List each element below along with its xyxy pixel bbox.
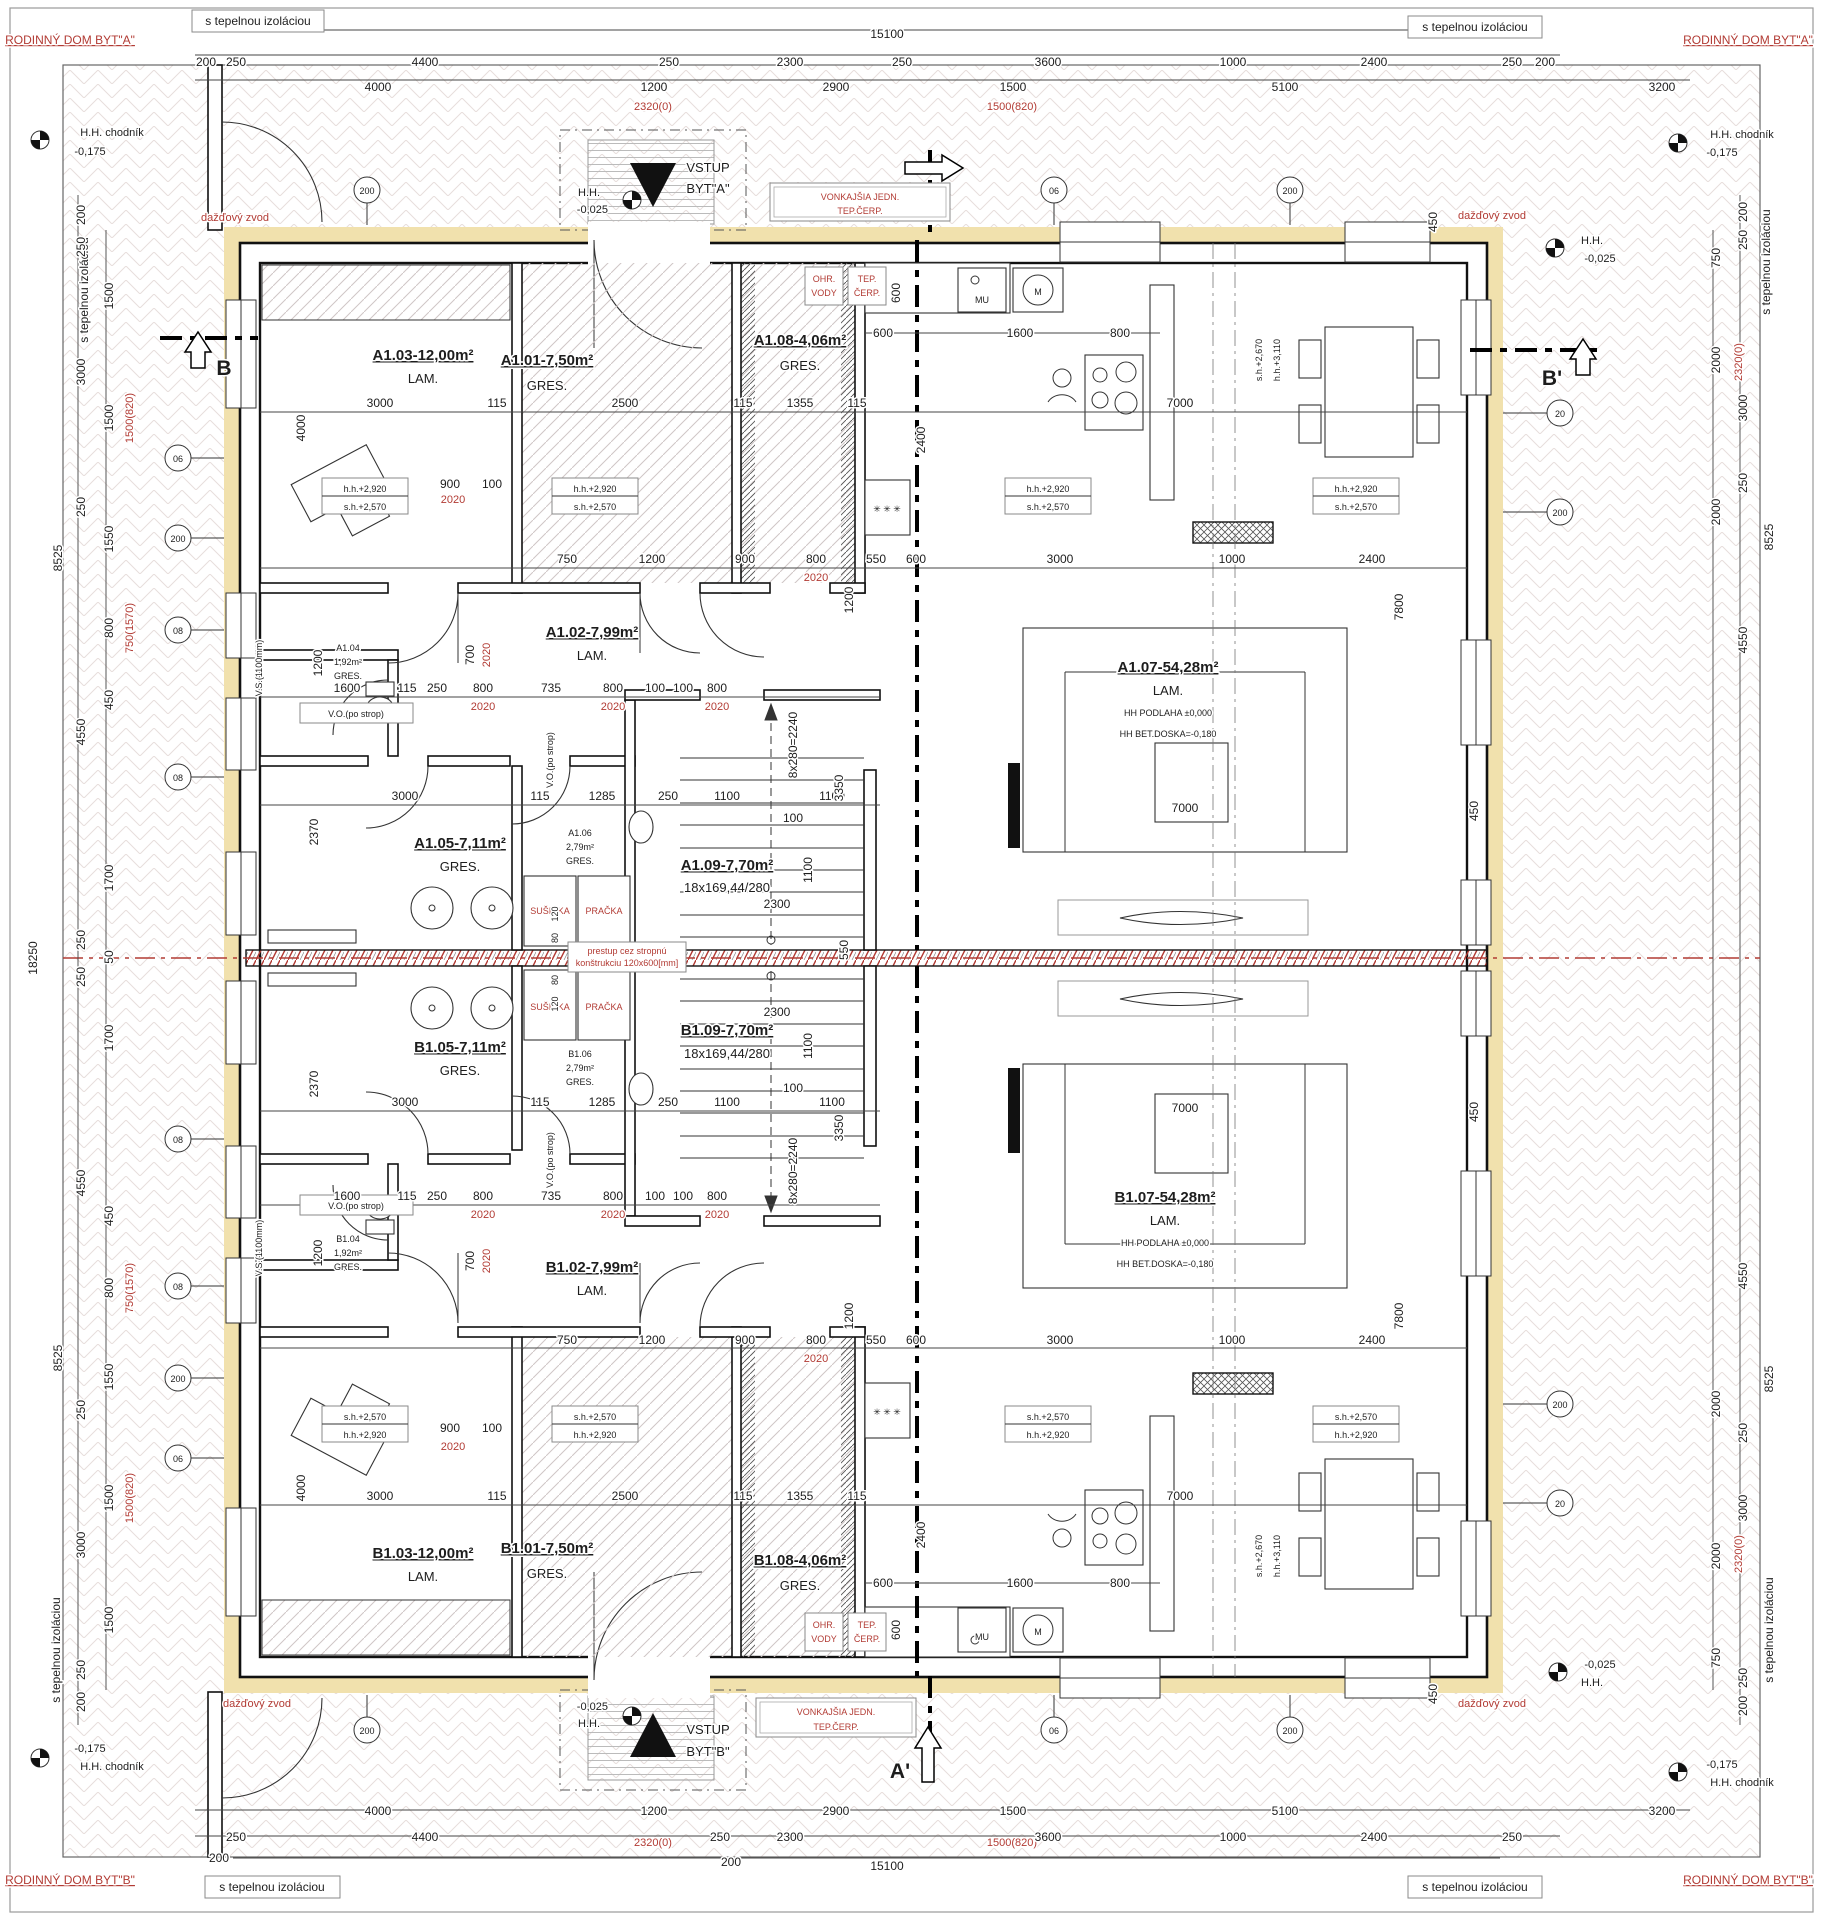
dim-label: 250 bbox=[427, 681, 447, 695]
dim-label: 1600 bbox=[334, 681, 361, 695]
window-mark: 08 bbox=[173, 773, 183, 783]
dim-label: 100 bbox=[783, 1081, 803, 1095]
sidewalk-label: H.H. chodník bbox=[1710, 129, 1774, 141]
dim-label: 550 bbox=[866, 1333, 886, 1347]
dim-label: 50 bbox=[102, 950, 116, 964]
stair-run-note: 18x169,44/280 bbox=[684, 1046, 770, 1061]
dim-label: 600 bbox=[873, 326, 893, 340]
room-a104: A1.04 bbox=[336, 643, 360, 653]
dim-label: 120 bbox=[550, 996, 560, 1011]
dim-label: 1500 bbox=[1000, 1804, 1027, 1818]
window-mark: 08 bbox=[173, 1282, 183, 1292]
dim-label: 250 bbox=[74, 1660, 88, 1680]
dim-label: 250 bbox=[710, 1830, 730, 1844]
dim-label: 200 bbox=[196, 55, 216, 69]
sill-height: s.h.+2,670 bbox=[1254, 1535, 1264, 1577]
dim-label: 1700 bbox=[102, 1024, 116, 1051]
dim-label: 100 bbox=[645, 1189, 665, 1203]
dim-label: 3000 bbox=[1047, 552, 1074, 566]
red-dim-label: 1500(820) bbox=[987, 1837, 1037, 1849]
downspout-label: dažďový zvod bbox=[1458, 210, 1526, 222]
sidewalk-label: H.H. chodník bbox=[1710, 1777, 1774, 1789]
dim-label: 2000 bbox=[1709, 498, 1723, 525]
dim-label: 1600 bbox=[334, 1189, 361, 1203]
floor-type: LAM. bbox=[1150, 1213, 1180, 1228]
title-top-right: RODINNÝ DOM BYT"A" bbox=[1683, 32, 1813, 47]
dim-label: 15100 bbox=[870, 1859, 904, 1873]
room-b107: B1.07-54,28m² bbox=[1115, 1189, 1216, 1206]
dim-label: 1500 bbox=[102, 1484, 116, 1511]
window-mark: 06 bbox=[1049, 1726, 1059, 1736]
floor-type: LAM. bbox=[408, 1569, 438, 1584]
slab-level-note: HH BET.DOSKA=-0,180 bbox=[1117, 1259, 1214, 1269]
floor-plan-sheet: A A' B B' RODINNÝ DOM BYT"A" RODINNÝ DOM… bbox=[0, 0, 1823, 1920]
dim-label: 800 bbox=[1110, 326, 1130, 340]
sidewalk-level: -0,175 bbox=[1706, 1759, 1737, 1771]
window-mark: 200 bbox=[1282, 186, 1297, 196]
dim-label: 2370 bbox=[307, 818, 321, 845]
dim-label: 250 bbox=[226, 55, 246, 69]
dim-label: 5100 bbox=[1272, 1804, 1299, 1818]
room-area: 1,92m² bbox=[334, 657, 362, 667]
dim-label: 2400 bbox=[914, 426, 928, 453]
room-b103: B1.03-12,00m² bbox=[373, 1545, 474, 1562]
dim-label: 1200 bbox=[641, 80, 668, 94]
dim-label: 200 bbox=[74, 1692, 88, 1712]
dim-label: 4000 bbox=[365, 1804, 392, 1818]
sill-height: s.h.+2,670 bbox=[1254, 339, 1264, 381]
dim-label: 1100 bbox=[801, 857, 815, 883]
prestup-line2: konštrukciu 120x600[mm] bbox=[576, 958, 679, 968]
dim-label: 800 bbox=[707, 681, 727, 695]
red-dim-label: 2020 bbox=[481, 1249, 493, 1273]
dim-label: 900 bbox=[735, 552, 755, 566]
dim-label: 3200 bbox=[1649, 1804, 1676, 1818]
room-a107: A1.07-54,28m² bbox=[1118, 659, 1219, 676]
red-dim-label: 750(1570) bbox=[124, 1263, 136, 1313]
dim-label: 7000 bbox=[1172, 801, 1199, 815]
dim-label: 1550 bbox=[102, 525, 116, 552]
vs-note: V.S.(1100mm) bbox=[254, 1220, 264, 1277]
dim-label: 800 bbox=[102, 1278, 116, 1298]
insulation-label: s tepelnou izoláciou bbox=[49, 1597, 63, 1702]
dim-label: 750 bbox=[557, 1333, 577, 1347]
room-a102: A1.02-7,99m² bbox=[546, 624, 639, 641]
red-dim-label: 2020 bbox=[804, 1353, 828, 1365]
floor-type: GRES. bbox=[566, 856, 594, 866]
sill-height: s.h.+2,570 bbox=[574, 1412, 616, 1422]
dim-label: 100 bbox=[482, 1421, 502, 1435]
dim-label: 250 bbox=[1736, 1423, 1750, 1443]
room-area: 2,79m² bbox=[566, 842, 594, 852]
section-label-b2: B' bbox=[1542, 367, 1562, 390]
floor-type: GRES. bbox=[334, 671, 362, 681]
dim-label: 250 bbox=[427, 1189, 447, 1203]
window-mark: 08 bbox=[173, 626, 183, 636]
tep-cerp: ČERP. bbox=[854, 1634, 880, 1644]
floor-type: GRES. bbox=[566, 1077, 594, 1087]
floor-type: GRES. bbox=[440, 1063, 480, 1078]
dim-label: 100 bbox=[783, 811, 803, 825]
section-label-b: B bbox=[216, 357, 231, 380]
dim-label: 250 bbox=[892, 55, 912, 69]
insulation-label: s tepelnou izoláciou bbox=[1759, 209, 1773, 314]
room-b104: B1.04 bbox=[336, 1234, 360, 1244]
downspout-label: dažďový zvod bbox=[223, 1698, 291, 1710]
dim-label: 600 bbox=[906, 1333, 926, 1347]
dim-label: 600 bbox=[906, 552, 926, 566]
floor-level-note: HH PODLAHA ±0,000 bbox=[1121, 1238, 1209, 1248]
dim-label: 1200 bbox=[311, 649, 325, 676]
sill-height: s.h.+2,570 bbox=[1027, 502, 1069, 512]
dim-label: 100 bbox=[645, 681, 665, 695]
red-dim-label: 2020 bbox=[804, 572, 828, 584]
outdoor-unit-line2: TEP.ČERP. bbox=[837, 206, 882, 216]
dim-label: 7000 bbox=[1172, 1101, 1199, 1115]
window-mark: 200 bbox=[359, 186, 374, 196]
window-mark: 20 bbox=[1555, 409, 1565, 419]
dim-label: 1200 bbox=[639, 1333, 666, 1347]
dim-label: 1285 bbox=[589, 1095, 616, 1109]
hh-label: H.H. bbox=[578, 1718, 600, 1730]
dim-label: 1500 bbox=[102, 282, 116, 309]
lintel-height: h.h.+2,920 bbox=[574, 484, 617, 494]
dim-label: 250 bbox=[658, 1095, 678, 1109]
dim-label: 450 bbox=[102, 1206, 116, 1226]
dim-label: 2900 bbox=[823, 1804, 850, 1818]
entry-level: -0,025 bbox=[577, 204, 608, 216]
dim-label: 115 bbox=[487, 396, 506, 410]
dim-label: 100 bbox=[482, 477, 502, 491]
dim-label: 250 bbox=[74, 930, 88, 950]
room-b108: B1.08-4,06m² bbox=[754, 1552, 847, 1569]
red-dim-label: 2020 bbox=[481, 643, 493, 667]
dim-label: 900 bbox=[735, 1333, 755, 1347]
dim-label: 800 bbox=[473, 681, 493, 695]
slab-level-note: HH BET.DOSKA=-0,180 bbox=[1120, 729, 1217, 739]
sink-mu: MU bbox=[975, 295, 989, 305]
ohr-vody: VODY bbox=[811, 1634, 837, 1644]
window-mark: 200 bbox=[1282, 1726, 1297, 1736]
dim-label: 2000 bbox=[1709, 1390, 1723, 1417]
dim-label: 2000 bbox=[1709, 346, 1723, 373]
room-a103: A1.03-12,00m² bbox=[373, 347, 474, 364]
dim-label: 800 bbox=[806, 1333, 826, 1347]
sidewalk-label: H.H. chodník bbox=[80, 1761, 144, 1773]
vstup-label: VSTUP bbox=[686, 1722, 729, 1737]
dim-label: 115 bbox=[733, 1489, 752, 1503]
dim-label: 4400 bbox=[412, 55, 439, 69]
dim-label: 1100 bbox=[714, 789, 740, 803]
lintel-height: h.h.+2,920 bbox=[344, 1430, 387, 1440]
red-dim-label: 750(1570) bbox=[124, 603, 136, 653]
washer-m: M bbox=[1034, 287, 1042, 297]
room-b106: B1.06 bbox=[568, 1049, 592, 1059]
window-mark: 06 bbox=[173, 1454, 183, 1464]
sidewalk-level: -0,175 bbox=[74, 1743, 105, 1755]
lintel-height: h.h.+2,920 bbox=[1027, 484, 1070, 494]
dim-label: 8525 bbox=[1762, 523, 1776, 550]
room-b101: B1.01-7,50m² bbox=[501, 1540, 594, 1557]
lintel-height: h.h.+2,920 bbox=[1335, 1430, 1378, 1440]
dim-label: 1000 bbox=[1220, 55, 1247, 69]
dim-label: 250 bbox=[74, 237, 88, 257]
vo-note: V.O.(po strop) bbox=[545, 1132, 555, 1188]
dim-label: 115 bbox=[530, 789, 549, 803]
outdoor-unit-line1: VONKAJŠIA JEDN. bbox=[821, 192, 900, 202]
dim-label: 1500 bbox=[102, 1606, 116, 1633]
title-bottom-left: RODINNÝ DOM BYT"B" bbox=[5, 1872, 135, 1887]
dim-label: 8525 bbox=[1762, 1365, 1776, 1392]
dim-label: 250 bbox=[658, 789, 678, 803]
pracka-label: PRAČKA bbox=[585, 906, 622, 916]
dim-label: 4550 bbox=[1736, 1262, 1750, 1289]
sill-height: s.h.+2,570 bbox=[1027, 1412, 1069, 1422]
dim-label: 800 bbox=[1110, 1576, 1130, 1590]
room-a108: A1.08-4,06m² bbox=[754, 332, 847, 349]
red-dim-label: 2320(0) bbox=[634, 101, 672, 113]
window-mark: 20 bbox=[1555, 1499, 1565, 1509]
dim-label: 115 bbox=[397, 1189, 416, 1203]
dim-label: 2300 bbox=[764, 897, 791, 911]
dim-label: 800 bbox=[603, 1189, 623, 1203]
sidewalk-label: H.H. chodník bbox=[80, 127, 144, 139]
dim-label: 1600 bbox=[1007, 1576, 1034, 1590]
entry-level: -0,025 bbox=[577, 1701, 608, 1713]
dim-label: 600 bbox=[873, 1576, 893, 1590]
dim-label: 120 bbox=[550, 906, 560, 921]
dim-label: 3000 bbox=[367, 1489, 394, 1503]
dim-label: 7800 bbox=[1392, 1302, 1406, 1329]
window-mark: 200 bbox=[359, 1726, 374, 1736]
dim-label: 115 bbox=[847, 396, 866, 410]
dim-label: 700 bbox=[463, 645, 477, 665]
dim-label: 2400 bbox=[1359, 1333, 1386, 1347]
dim-label: 250 bbox=[1736, 473, 1750, 493]
dim-label: 2300 bbox=[777, 55, 804, 69]
dim-label: 550 bbox=[837, 940, 851, 960]
sink-mu: MU bbox=[975, 1632, 989, 1642]
dim-label: 3000 bbox=[392, 1095, 419, 1109]
dim-label: 1600 bbox=[1007, 326, 1034, 340]
room-a106: A1.06 bbox=[568, 828, 592, 838]
floor-type: LAM. bbox=[1153, 683, 1183, 698]
title-top-left: RODINNÝ DOM BYT"A" bbox=[5, 32, 135, 47]
hh-label: H.H. bbox=[1581, 235, 1603, 247]
dim-label: 1355 bbox=[787, 1489, 814, 1503]
dim-label: 200 bbox=[721, 1855, 741, 1869]
dim-label: 7000 bbox=[1167, 1489, 1194, 1503]
hh-label: H.H. bbox=[578, 187, 600, 199]
dim-label: 250 bbox=[1502, 1830, 1522, 1844]
dim-label: 4400 bbox=[412, 1830, 439, 1844]
dim-label: 7800 bbox=[1392, 593, 1406, 620]
section-label-a2: A' bbox=[890, 1760, 910, 1783]
room-a109: A1.09-7,70m² bbox=[681, 857, 774, 874]
dim-label: 1550 bbox=[102, 1363, 116, 1390]
dim-label: 2300 bbox=[764, 1005, 791, 1019]
dim-label: 550 bbox=[866, 552, 886, 566]
room-a101: A1.01-7,50m² bbox=[501, 352, 594, 369]
dim-label: 450 bbox=[1426, 212, 1440, 232]
vo-note: V.O.(po strop) bbox=[545, 732, 555, 788]
red-dim-label: 2020 bbox=[705, 701, 729, 713]
sill-height: s.h.+2,570 bbox=[344, 1412, 386, 1422]
dim-label: 450 bbox=[102, 690, 116, 710]
red-dim-label: 2020 bbox=[601, 701, 625, 713]
window-mark: 200 bbox=[1552, 1400, 1567, 1410]
red-dim-label: 2020 bbox=[441, 494, 465, 506]
dim-label: 2500 bbox=[612, 396, 639, 410]
dim-label: 2900 bbox=[823, 80, 850, 94]
dim-label: 4000 bbox=[294, 414, 308, 441]
dim-label: 2370 bbox=[307, 1070, 321, 1097]
dim-label: 200 bbox=[209, 1851, 229, 1865]
dim-label: 1100 bbox=[801, 1033, 815, 1059]
dim-label: 4000 bbox=[294, 1474, 308, 1501]
sill-height: s.h.+2,570 bbox=[1335, 1412, 1377, 1422]
dim-label: 5100 bbox=[1272, 80, 1299, 94]
insulation-label: s tepelnou izoláciou bbox=[1422, 1880, 1527, 1894]
dim-label: 3350 bbox=[832, 774, 846, 801]
red-dim-label: 2020 bbox=[471, 1209, 495, 1221]
window-mark: 08 bbox=[173, 1135, 183, 1145]
dim-label: 1000 bbox=[1219, 552, 1246, 566]
stair-run-note: 18x169,44/280 bbox=[684, 880, 770, 895]
vo-note: V.O.(po strop) bbox=[328, 709, 384, 719]
dim-label: 18250 bbox=[26, 941, 40, 975]
dim-label: 750 bbox=[557, 552, 577, 566]
sill-height: s.h.+2,570 bbox=[574, 502, 616, 512]
dim-label: 1500 bbox=[1000, 80, 1027, 94]
dim-label: 250 bbox=[1736, 230, 1750, 250]
prestup-line1: prestup cez stropnú bbox=[587, 946, 666, 956]
red-dim-label: 1500(820) bbox=[987, 101, 1037, 113]
floor-type: LAM. bbox=[577, 1283, 607, 1298]
outdoor-unit-line1: VONKAJŠIA JEDN. bbox=[797, 1707, 876, 1717]
ohr-vody: VODY bbox=[811, 288, 837, 298]
floor-level-note: HH PODLAHA ±0,000 bbox=[1124, 708, 1212, 718]
dim-label: 750 bbox=[1709, 1648, 1723, 1668]
lintel-height: h.h.+2,920 bbox=[1335, 484, 1378, 494]
dim-label: 115 bbox=[847, 1489, 866, 1503]
stair-rise-note: 8x280=2240 bbox=[786, 711, 800, 778]
dim-label: 2400 bbox=[1361, 55, 1388, 69]
downspout-label: dažďový zvod bbox=[201, 212, 269, 224]
dim-label: 1200 bbox=[311, 1239, 325, 1266]
pracka-label: PRAČKA bbox=[585, 1002, 622, 1012]
floor-type: GRES. bbox=[780, 1578, 820, 1593]
dim-label: 1100 bbox=[714, 1095, 740, 1109]
dim-label: 80 bbox=[550, 933, 560, 943]
dim-label: 2400 bbox=[1359, 552, 1386, 566]
dim-label: 250 bbox=[74, 497, 88, 517]
room-b105: B1.05-7,11m² bbox=[414, 1039, 506, 1056]
dim-label: 250 bbox=[1502, 55, 1522, 69]
insulation-label: s tepelnou izoláciou bbox=[205, 14, 310, 28]
stove-symbol: ✳ ✳ ✳ bbox=[873, 1407, 901, 1417]
dim-label: 600 bbox=[889, 283, 903, 303]
dim-label: 1500 bbox=[102, 404, 116, 431]
dim-label: 2400 bbox=[1361, 1830, 1388, 1844]
red-dim-label: 1500(820) bbox=[124, 393, 136, 443]
dim-label: 4550 bbox=[74, 718, 88, 745]
dim-label: 450 bbox=[1467, 801, 1481, 821]
red-dim-label: 2320(0) bbox=[634, 1837, 672, 1849]
sidewalk-level: -0,175 bbox=[74, 146, 105, 158]
dim-label: 3000 bbox=[74, 1531, 88, 1558]
title-bottom-right: RODINNÝ DOM BYT"B" bbox=[1683, 1872, 1813, 1887]
lintel-height: h.h.+3,110 bbox=[1272, 1535, 1282, 1577]
outdoor-unit-line2: TEP.ČERP. bbox=[813, 1722, 858, 1732]
sidewalk-level: -0,175 bbox=[1706, 147, 1737, 159]
entry-level: -0,025 bbox=[1584, 253, 1615, 265]
floor-type: GRES. bbox=[440, 859, 480, 874]
sill-height: s.h.+2,570 bbox=[344, 502, 386, 512]
dim-label: 3350 bbox=[832, 1114, 846, 1141]
dim-label: 3000 bbox=[1736, 394, 1750, 421]
window-mark: 200 bbox=[170, 1374, 185, 1384]
dim-label: 1355 bbox=[787, 396, 814, 410]
prestup-note: prestup cez stropnú konštrukciu 120x600[… bbox=[568, 942, 686, 972]
dim-label: 1100 bbox=[819, 1095, 845, 1109]
dim-label: 2500 bbox=[612, 1489, 639, 1503]
dim-label: 115 bbox=[487, 1489, 506, 1503]
red-dim-label: 1500(820) bbox=[124, 1473, 136, 1523]
dim-label: 1200 bbox=[842, 586, 856, 613]
lintel-height: h.h.+2,920 bbox=[344, 484, 387, 494]
red-dim-label: 2020 bbox=[441, 1441, 465, 1453]
dim-label: 250 bbox=[226, 1830, 246, 1844]
lintel-height: h.h.+3,110 bbox=[1272, 339, 1282, 381]
dim-label: 800 bbox=[102, 618, 116, 638]
red-dim-label: 2020 bbox=[705, 1209, 729, 1221]
room-b109: B1.09-7,70m² bbox=[681, 1022, 774, 1039]
insulation-label: s tepelnou izoláciou bbox=[1422, 20, 1527, 34]
dim-label: 800 bbox=[603, 681, 623, 695]
floor-plan-svg: A A' B B' RODINNÝ DOM BYT"A" RODINNÝ DOM… bbox=[0, 0, 1823, 1920]
dim-label: 3000 bbox=[1047, 1333, 1074, 1347]
red-dim-label: 2320(0) bbox=[1733, 1535, 1745, 1573]
dim-label: 250 bbox=[74, 967, 88, 987]
dim-label: 735 bbox=[541, 1189, 561, 1203]
dim-label: 3000 bbox=[367, 396, 394, 410]
dim-label: 8525 bbox=[51, 544, 65, 571]
floor-type: GRES. bbox=[527, 1566, 567, 1581]
dim-label: 115 bbox=[733, 396, 752, 410]
floor-type: GRES. bbox=[527, 378, 567, 393]
window-mark: 200 bbox=[1552, 508, 1567, 518]
dim-label: 200 bbox=[1535, 55, 1555, 69]
dim-label: 100 bbox=[673, 1189, 693, 1203]
dim-label: 7000 bbox=[1167, 396, 1194, 410]
dim-label: 4000 bbox=[365, 80, 392, 94]
dim-label: 450 bbox=[1426, 1684, 1440, 1704]
washer-m: M bbox=[1034, 1627, 1042, 1637]
dim-label: 15100 bbox=[870, 27, 904, 41]
window-mark: 200 bbox=[170, 534, 185, 544]
dim-label: 3200 bbox=[1649, 80, 1676, 94]
dim-label: 3600 bbox=[1035, 55, 1062, 69]
lintel-height: h.h.+2,920 bbox=[1027, 1430, 1070, 1440]
dim-label: 900 bbox=[440, 1421, 460, 1435]
room-a105: A1.05-7,11m² bbox=[414, 835, 506, 852]
room-b102: B1.02-7,99m² bbox=[546, 1259, 639, 1276]
dim-label: 750 bbox=[1709, 248, 1723, 268]
vs-note: V.S.(1100mm) bbox=[254, 640, 264, 697]
floor-type: LAM. bbox=[408, 371, 438, 386]
stove-symbol: ✳ ✳ ✳ bbox=[873, 504, 901, 514]
